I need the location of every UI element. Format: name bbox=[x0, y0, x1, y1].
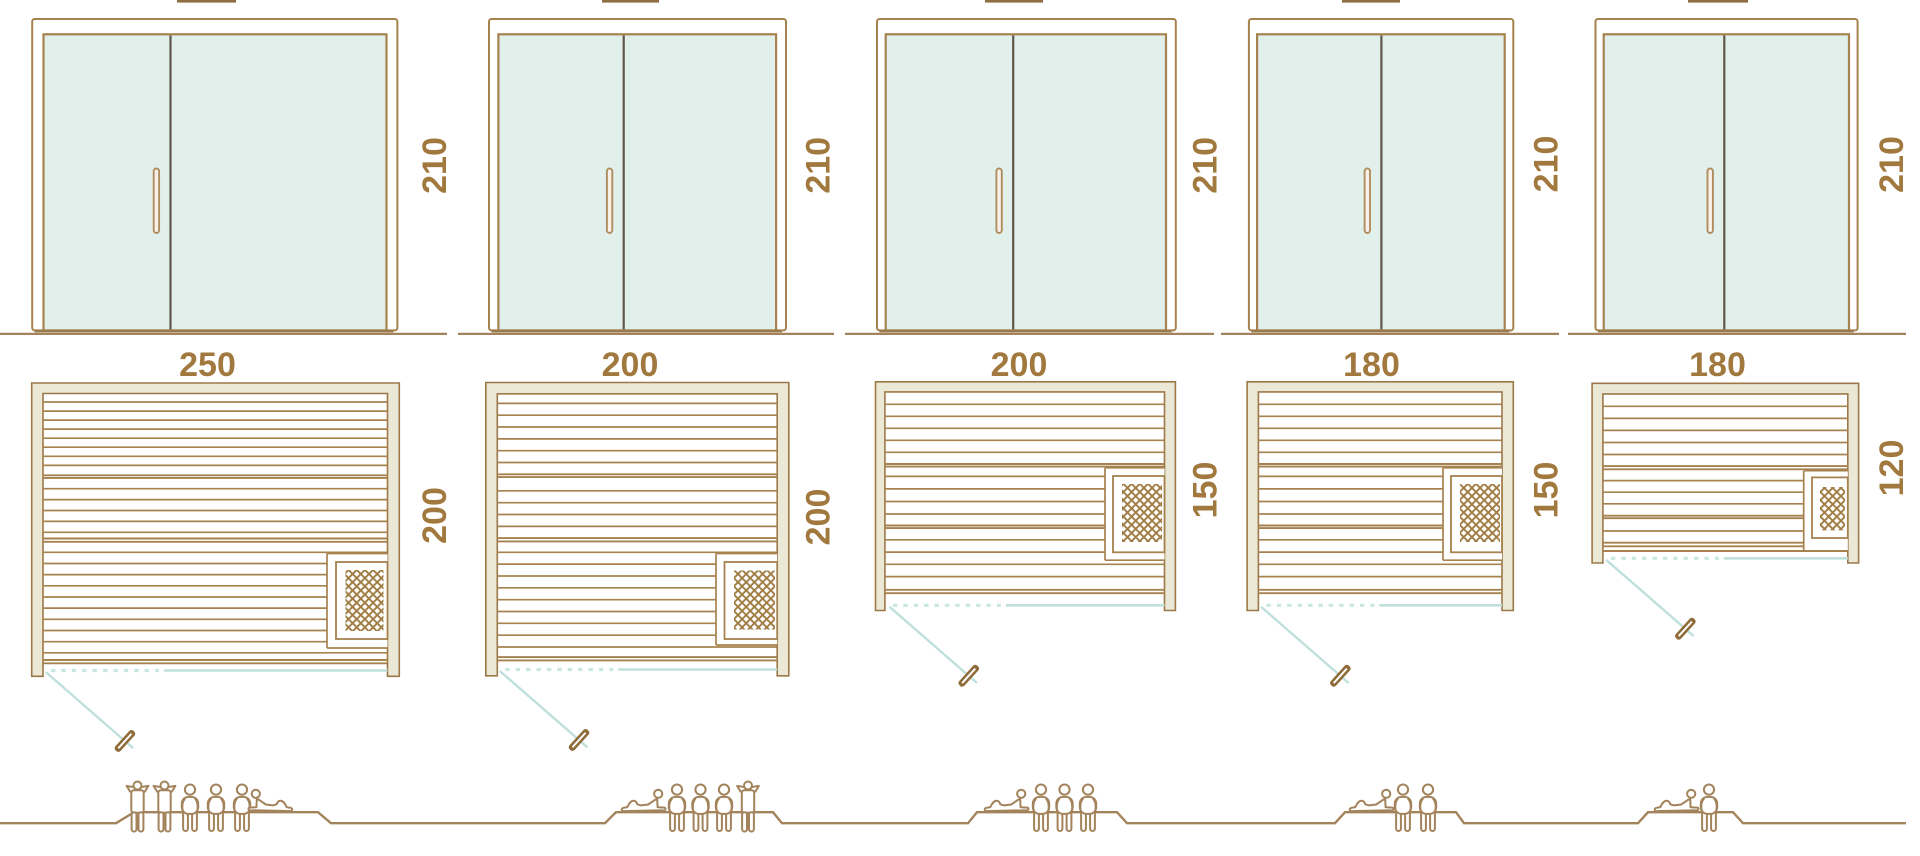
svg-text:200: 200 bbox=[800, 489, 838, 546]
svg-text:200: 200 bbox=[416, 487, 454, 544]
svg-text:200: 200 bbox=[602, 346, 659, 384]
svg-text:250: 250 bbox=[179, 346, 236, 384]
svg-text:210: 210 bbox=[1527, 136, 1565, 193]
svg-text:150: 150 bbox=[1187, 462, 1225, 519]
svg-text:180: 180 bbox=[1343, 346, 1400, 384]
svg-text:210: 210 bbox=[1873, 136, 1911, 193]
svg-text:210: 210 bbox=[1187, 137, 1225, 194]
svg-text:120: 120 bbox=[1873, 440, 1911, 497]
svg-text:150: 150 bbox=[1527, 462, 1565, 519]
svg-text:210: 210 bbox=[800, 137, 838, 194]
svg-text:180: 180 bbox=[1689, 346, 1746, 384]
svg-text:200: 200 bbox=[991, 346, 1048, 384]
svg-text:210: 210 bbox=[416, 137, 454, 194]
